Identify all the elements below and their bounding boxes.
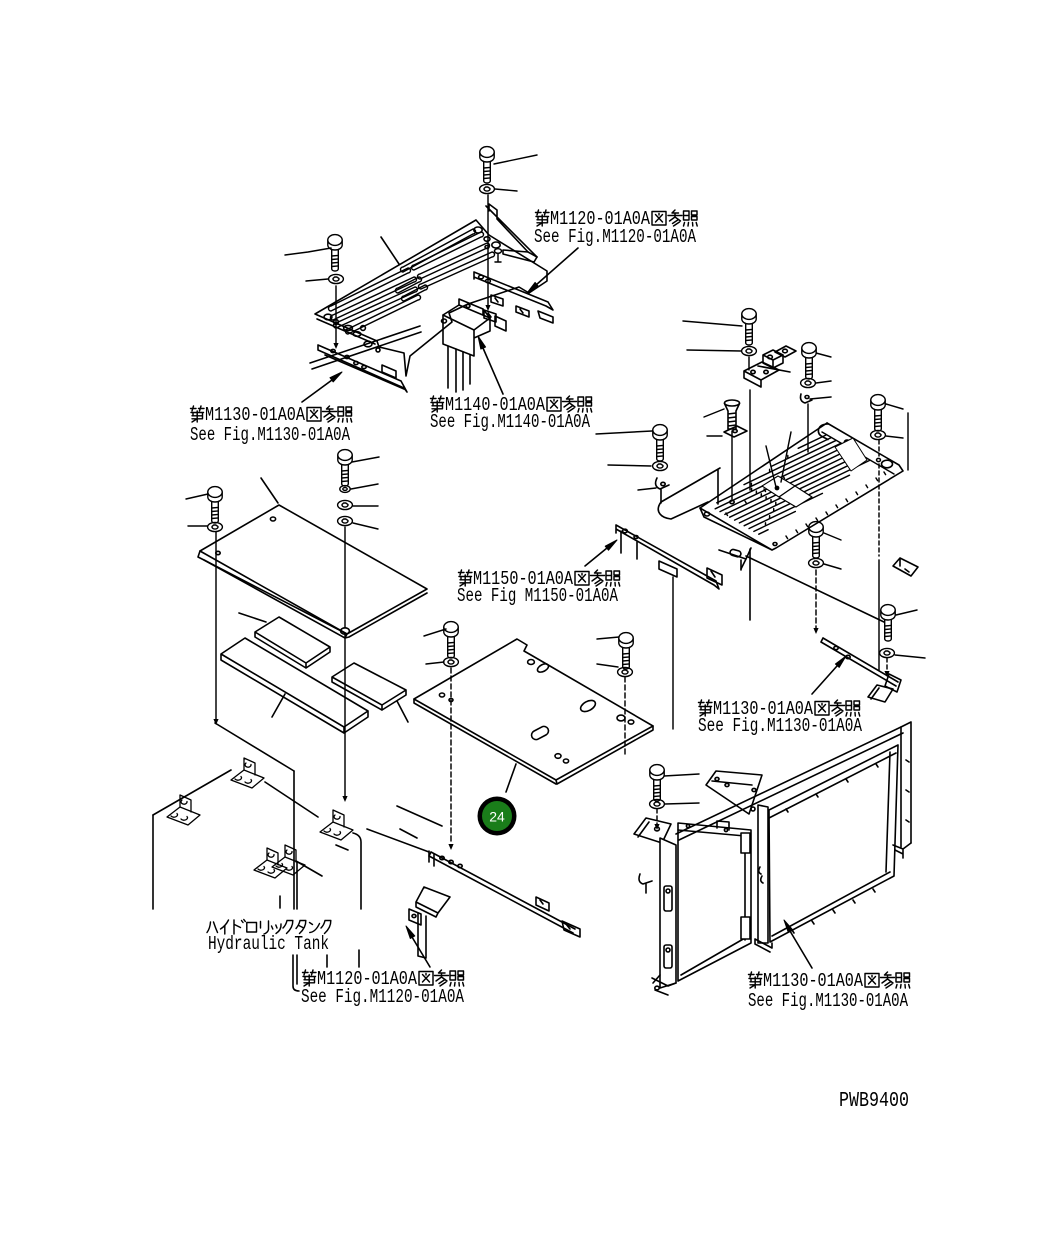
svg-text:See Fig.M1130-01A0A: See Fig.M1130-01A0A	[698, 715, 862, 737]
svg-text:M1130-01A0A: M1130-01A0A	[205, 404, 305, 426]
svg-text:See Fig.M1140-01A0A: See Fig.M1140-01A0A	[430, 411, 590, 433]
svg-text:See Fig.M1130-01A0A: See Fig.M1130-01A0A	[190, 424, 350, 446]
svg-text:M1130-01A0A: M1130-01A0A	[763, 970, 863, 992]
svg-text:24: 24	[489, 809, 505, 825]
svg-text:See Fig.M1120-01A0A: See Fig.M1120-01A0A	[301, 986, 464, 1008]
svg-text:See Fig.M1120-01A0A: See Fig.M1120-01A0A	[534, 226, 696, 248]
svg-text:See Fig.M1130-01A0A: See Fig.M1130-01A0A	[748, 990, 908, 1012]
svg-text:PWB9400: PWB9400	[839, 1090, 909, 1113]
svg-text:See Fig M1150-01A0A: See Fig M1150-01A0A	[457, 585, 618, 607]
svg-text:Hydraulic Tank: Hydraulic Tank	[208, 933, 329, 955]
